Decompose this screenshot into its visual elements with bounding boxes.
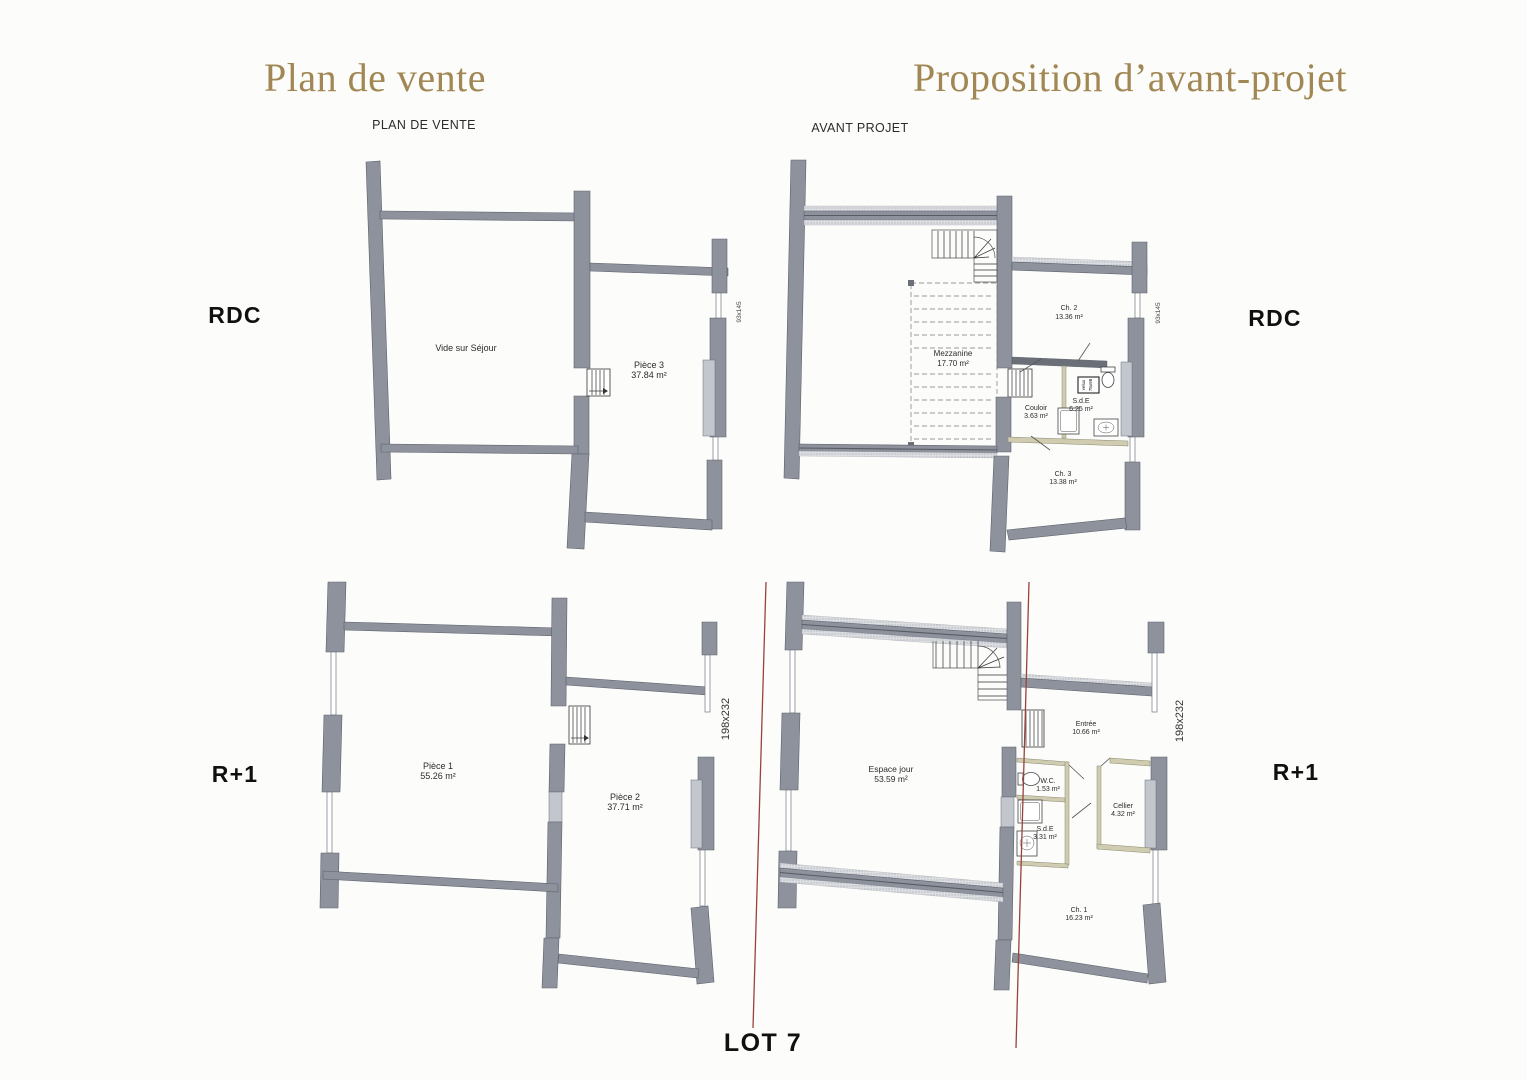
room-area: 55.26 m²	[420, 771, 456, 781]
velux-size-label: 78x98	[1088, 378, 1093, 391]
window	[331, 652, 336, 715]
room-label: Pièce 2	[610, 792, 640, 802]
window	[713, 437, 718, 460]
plan-ap-rdc: velux 78x98 Mezzanine 17.70 m² Ch. 2 13.…	[784, 160, 1162, 552]
room-label: Vide sur Séjour	[435, 343, 496, 353]
window	[1152, 653, 1157, 712]
room-label: Espace jour	[869, 764, 914, 774]
room-label: Couloir	[1025, 405, 1048, 412]
room-label: Ch. 3	[1055, 471, 1072, 478]
room-area: 37.84 m²	[631, 370, 667, 380]
door-jamb	[1101, 758, 1110, 766]
velux-box: velux 78x98	[1078, 377, 1099, 393]
door-panel	[549, 792, 562, 822]
room-area: 37.71 m²	[607, 802, 643, 812]
room-label: W.C.	[1040, 778, 1055, 785]
shower-icon	[1018, 800, 1042, 823]
stairs-mezzanine	[1008, 369, 1032, 397]
radiator-panel	[703, 360, 715, 436]
toilet-icon	[1018, 773, 1040, 786]
plan-pv-rdc: Vide sur Séjour Pièce 3 37.84 m² 93x145	[366, 161, 743, 549]
room-area: 3.31 m²	[1033, 834, 1057, 841]
window	[1135, 293, 1140, 318]
room-label: S.d.E	[1072, 398, 1089, 405]
door-leaf	[1069, 765, 1084, 779]
room-label: Ch. 2	[1061, 305, 1078, 312]
door-panel	[1001, 797, 1014, 827]
window	[705, 655, 710, 712]
stairs	[587, 369, 610, 396]
radiator-panel	[691, 780, 702, 848]
window	[1153, 850, 1158, 905]
room-area: 13.36 m²	[1055, 314, 1083, 321]
room-area: 17.70 m²	[937, 359, 969, 368]
radiator-panel	[1121, 362, 1132, 436]
sink-icon	[1094, 419, 1118, 436]
floorplans-canvas: Vide sur Séjour Pièce 3 37.84 m² 93x145	[0, 0, 1527, 1080]
plan-ap-r1: Espace jour 53.59 m² Entrée 10.66 m² W.C…	[778, 582, 1186, 990]
radiator-panel	[1145, 780, 1156, 848]
window-dimension-label: 198x232	[720, 698, 732, 740]
room-label: Ch. 1	[1071, 907, 1088, 914]
window	[327, 792, 332, 853]
door-leaf	[1078, 343, 1090, 361]
room-label: Pièce 1	[423, 761, 453, 771]
door-leaf	[1072, 803, 1091, 818]
partition-wall	[1065, 762, 1069, 865]
velux-label: velux	[1081, 379, 1086, 390]
room-area: 6.25 m²	[1069, 406, 1093, 413]
window	[716, 293, 721, 318]
room-label: Pièce 3	[634, 360, 664, 370]
room-label: Cellier	[1113, 803, 1134, 810]
partition-wall	[1097, 766, 1101, 848]
room-area: 53.59 m²	[874, 774, 908, 784]
window-dimension-label: 93x145	[736, 301, 743, 323]
window	[786, 790, 791, 851]
room-area: 10.66 m²	[1072, 729, 1100, 736]
window	[790, 650, 795, 713]
window-dimension-label: 93x145	[1155, 302, 1162, 324]
window	[1130, 437, 1135, 462]
room-label: Mezzanine	[934, 349, 973, 358]
stairs	[933, 641, 1007, 700]
room-area: 3.63 m²	[1024, 413, 1048, 420]
room-area: 13.38 m²	[1049, 479, 1077, 486]
room-area: 1.53 m²	[1036, 786, 1060, 793]
plan-pv-r1: Pièce 1 55.26 m² Pièce 2 37.71 m² 198x23…	[320, 582, 732, 988]
room-area: 4.32 m²	[1111, 811, 1135, 818]
window	[700, 850, 705, 906]
room-label: Entrée	[1076, 721, 1097, 728]
stairs	[569, 706, 590, 744]
stairs	[932, 230, 997, 282]
room-label: S.d.E	[1036, 826, 1053, 833]
window-dimension-label: 198x232	[1174, 700, 1186, 742]
room-area: 16.23 m²	[1065, 915, 1093, 922]
toilet-icon	[1101, 367, 1115, 388]
